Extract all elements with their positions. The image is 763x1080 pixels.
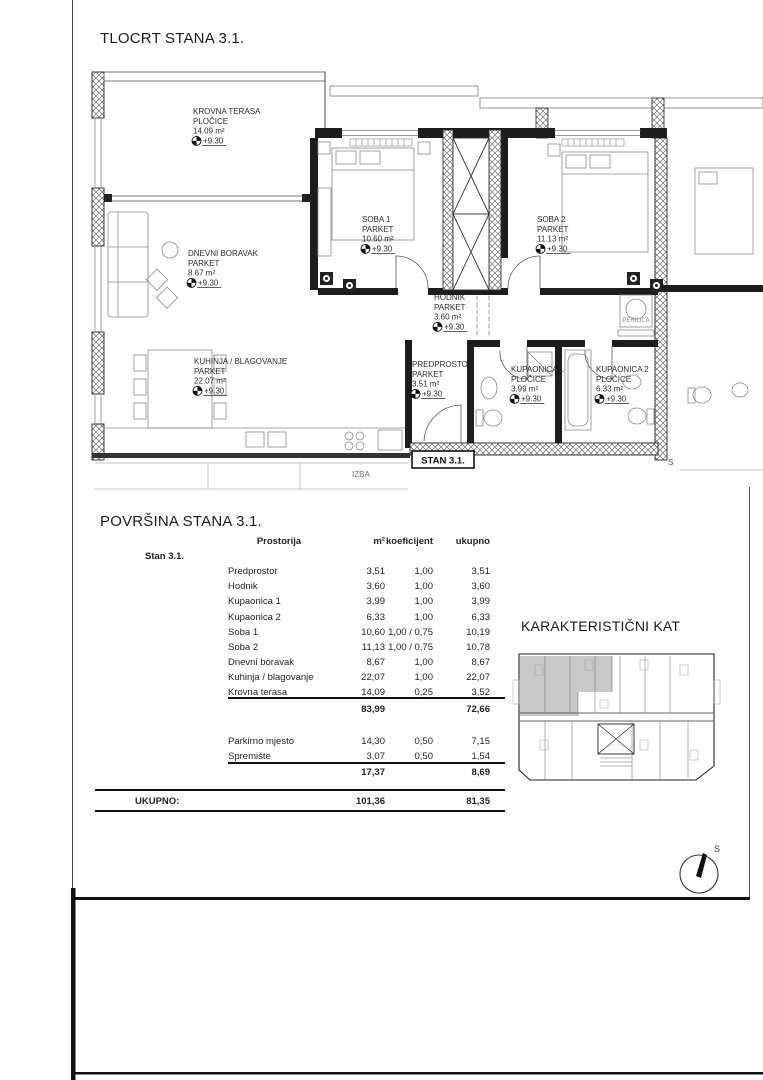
row-koef: 1,00	[385, 657, 433, 668]
level-value: +9.30	[203, 136, 224, 145]
room-label-soba-2: SOBA 2PARKET11.13 m²+9.30	[536, 215, 570, 253]
row-ukupno: 10,78	[433, 642, 490, 653]
row-ukupno: 8,67	[433, 657, 490, 668]
subtotal-row: 17,378,69	[95, 765, 507, 780]
dashed-lines	[477, 296, 489, 338]
level-value: +9.30	[204, 386, 225, 395]
row-koef: 1,00 / 0,75	[385, 627, 433, 638]
row-koef: 0,50	[385, 751, 433, 762]
doors	[396, 256, 612, 443]
level-value: +9.30	[606, 394, 627, 403]
level-value: +9.30	[372, 244, 393, 253]
room-label-line: 6.33 m²	[596, 385, 623, 394]
room-label-line: 11.13 m²	[537, 235, 568, 244]
row-name: Dnevni boravak	[228, 657, 330, 668]
table-row: Soba 110,601,00 / 0,7510,19	[95, 625, 507, 640]
key-plan	[513, 654, 720, 780]
room-label-line: HODNIK	[434, 293, 466, 302]
row-m2: 3,60	[330, 581, 385, 592]
col-header-prostorija: Prostorija	[228, 536, 330, 547]
group-row: Stan 3.1.	[95, 549, 507, 564]
compass: S	[680, 844, 720, 893]
row-koef: 1,00	[385, 672, 433, 683]
sofa	[108, 212, 148, 317]
exterior-walls	[92, 72, 104, 460]
group-label: Stan 3.1.	[95, 551, 228, 562]
row-name: Parkirno mjesto	[228, 736, 330, 747]
row-name: Kupaonica 2	[228, 612, 330, 623]
table-rule-total-bottom	[95, 810, 505, 812]
table-rule-total-top	[95, 789, 505, 791]
drawing-sheet: { "page": { "plan_title": "TLOCRT STANA …	[0, 0, 763, 1080]
row-m2: 22,07	[330, 672, 385, 683]
subtotal-m2: 17,37	[330, 767, 385, 778]
room-label-line: PARKET	[362, 225, 394, 234]
row-m2: 3,07	[330, 751, 385, 762]
room-label-line: PARKET	[434, 303, 466, 312]
main-floor-plan: STAN 3.1. KROVNA TERASAPLOČICE14.09 m²+9…	[92, 72, 763, 489]
level-value: +9.30	[444, 322, 465, 331]
room-label-line: PARKET	[412, 370, 444, 379]
subtotal-ukupno: 72,66	[433, 704, 490, 715]
room-label-line: PREDPROSTOR	[412, 360, 474, 369]
coffee-table	[162, 242, 178, 258]
row-name: Hodnik	[228, 581, 330, 592]
room-label-krovna-terasa: KROVNA TERASAPLOČICE14.09 m²+9.30	[192, 107, 261, 145]
row-koef: 1,00	[385, 596, 433, 607]
room-label-hodnik: HODNIKPARKET3.60 m²+9.30	[433, 293, 467, 331]
plan-small-label-cut-label-s: S	[668, 458, 673, 467]
total-label: UKUPNO:	[95, 796, 228, 807]
row-name: Soba 2	[228, 642, 330, 653]
apartment-tag-label: STAN 3.1.	[421, 456, 465, 467]
room-label-line: 8.67 m²	[188, 269, 215, 278]
table-row: Kupaonica 26,331,006,33	[95, 609, 507, 624]
total-ukupno: 81,35	[433, 796, 490, 807]
room-label-line: PARKET	[188, 259, 220, 268]
plan-small-label-izba: IZBA	[352, 470, 370, 479]
table-rule	[228, 697, 505, 699]
table-row: Parkirno mjesto14,300,507,15	[95, 734, 507, 749]
compass-needle	[696, 853, 707, 878]
keyplan-title: KARAKTERISTIČNI KAT	[521, 618, 680, 634]
row-name: Predprostor	[228, 566, 330, 577]
room-label-line: 10.60 m²	[362, 235, 394, 244]
room-label-line: 22.07 m²	[194, 377, 226, 386]
col-header-m2: m²	[330, 536, 385, 547]
level-value: +9.30	[547, 244, 568, 253]
room-label-line: PLOČICE	[596, 375, 631, 384]
room-label-dnevni-boravak: DNEVNI BORAVAKPARKET8.67 m²+9.30	[187, 249, 259, 287]
total-m2: 101,36	[330, 796, 385, 807]
bed-2	[562, 152, 648, 252]
highlighted-unit	[520, 656, 612, 716]
room-label-line: KUPAONICA 1	[511, 365, 564, 374]
room-label-line: DNEVNI BORAVAK	[188, 249, 259, 258]
plan-small-label-perilica: PERILICA	[622, 318, 649, 324]
room-label-predprostor: PREDPROSTORPARKET3.51 m²+9.30	[411, 360, 474, 398]
apartment-tag: STAN 3.1.	[412, 451, 474, 468]
room-label-line: 3.51 m²	[412, 380, 439, 389]
row-name: Kuhinja / blagovanje	[228, 672, 330, 683]
row-m2: 3,51	[330, 566, 385, 577]
col-header-ukupno: ukupno	[433, 536, 490, 547]
table-gap	[95, 717, 507, 734]
level-value: +9.30	[521, 394, 542, 403]
row-m2: 14,30	[330, 736, 385, 747]
row-koef: 0,50	[385, 736, 433, 747]
room-label-line: 3.99 m²	[511, 385, 538, 394]
row-ukupno: 10,19	[433, 627, 490, 638]
table-row: Kupaonica 13,991,003,99	[95, 594, 507, 609]
room-label-line: 14.09 m²	[193, 127, 225, 136]
row-koef: 1,00	[385, 612, 433, 623]
table-row: Hodnik3,601,003,60	[95, 579, 507, 594]
compass-north-label: S	[714, 844, 720, 854]
total-row: UKUPNO:101,3681,35	[95, 794, 507, 809]
room-label-line: PARKET	[537, 225, 569, 234]
room-label-soba-1: SOBA 1PARKET10.60 m²+9.30	[361, 215, 395, 253]
room-label-line: KUPAONICA 2	[596, 365, 649, 374]
row-ukupno: 6,33	[433, 612, 490, 623]
table-row: Dnevni boravak8,671,008,67	[95, 655, 507, 670]
row-name: Spremište	[228, 751, 330, 762]
row-m2: 8,67	[330, 657, 385, 668]
row-m2: 6,33	[330, 612, 385, 623]
row-ukupno: 3,51	[433, 566, 490, 577]
table-rule	[228, 762, 505, 764]
room-label-line: KUHINJA / BLAGOVANJE	[194, 357, 287, 366]
row-ukupno: 3,99	[433, 596, 490, 607]
row-m2: 11,13	[330, 642, 385, 653]
row-m2: 3,99	[330, 596, 385, 607]
row-koef: 1,00	[385, 566, 433, 577]
room-label-line: PLOČICE	[193, 117, 228, 126]
room-label-kupaonica-2: KUPAONICA 2PLOČICE6.33 m²+9.30	[595, 365, 649, 403]
level-value: +9.30	[198, 278, 219, 287]
table-row: Predprostor3,511,003,51	[95, 564, 507, 579]
row-ukupno: 7,15	[433, 736, 490, 747]
room-label-line: SOBA 1	[362, 215, 391, 224]
col-header-koeficijent: koeficijent	[385, 536, 433, 547]
table-title: POVRŠINA STANA 3.1.	[100, 513, 262, 530]
row-ukupno: 22,07	[433, 672, 490, 683]
row-name: Kupaonica 1	[228, 596, 330, 607]
subtotal-m2: 83,99	[330, 704, 385, 715]
row-koef: 1,00 / 0,75	[385, 642, 433, 653]
room-label-line: PLOČICE	[511, 375, 546, 384]
room-label-line: 3.60 m²	[434, 313, 461, 322]
row-koef: 1,00	[385, 581, 433, 592]
row-name: Soba 1	[228, 627, 330, 638]
room-label-kuhinja-blagovanje: KUHINJA / BLAGOVANJEPARKET22.07 m²+9.30	[193, 357, 287, 395]
room-label-line: PARKET	[194, 367, 226, 376]
table-row: Soba 211,131,00 / 0,7510,78	[95, 640, 507, 655]
room-label-line: SOBA 2	[537, 215, 566, 224]
area-table: Prostorijam²koeficijentukupnoStan 3.1.Pr…	[95, 534, 507, 810]
plan-title: TLOCRT STANA 3.1.	[100, 30, 244, 47]
row-ukupno: 1,54	[433, 751, 490, 762]
terrace-glass-wall	[104, 194, 310, 202]
subtotal-row: 83,9972,66	[95, 702, 507, 717]
interior-walls	[92, 138, 667, 460]
row-ukupno: 3,60	[433, 581, 490, 592]
room-label-line: KROVNA TERASA	[193, 107, 261, 116]
stair-shaft	[443, 130, 501, 290]
level-value: +9.30	[422, 389, 443, 398]
subtotal-ukupno: 8,69	[433, 767, 490, 778]
table-row: Kuhinja / blagovanje22,071,0022,07	[95, 670, 507, 685]
table-header-row: Prostorijam²koeficijentukupno	[95, 534, 507, 549]
row-m2: 10,60	[330, 627, 385, 638]
